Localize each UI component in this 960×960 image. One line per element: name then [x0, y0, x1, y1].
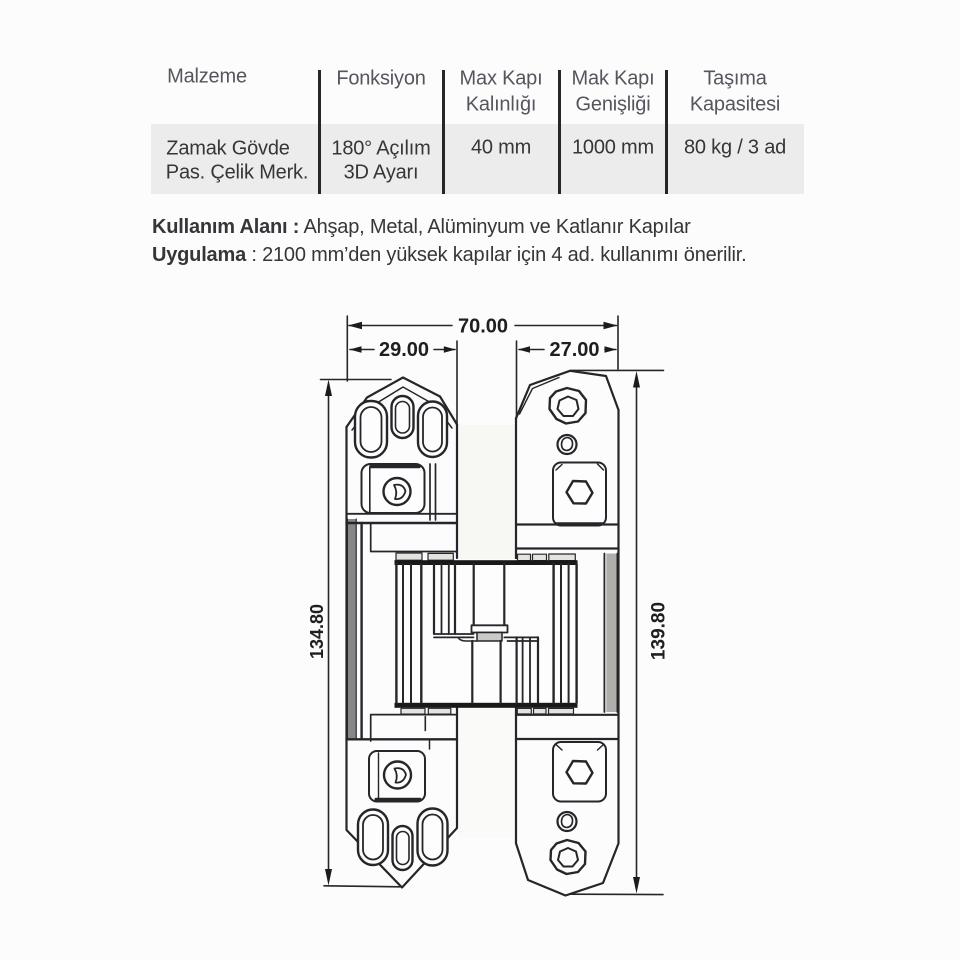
svg-text:134.80: 134.80 — [307, 604, 327, 659]
svg-text:27.00: 27.00 — [549, 339, 599, 361]
svg-text:139.80: 139.80 — [649, 602, 670, 660]
svg-text:70.00: 70.00 — [458, 316, 508, 338]
svg-text:29.00: 29.00 — [379, 339, 429, 361]
